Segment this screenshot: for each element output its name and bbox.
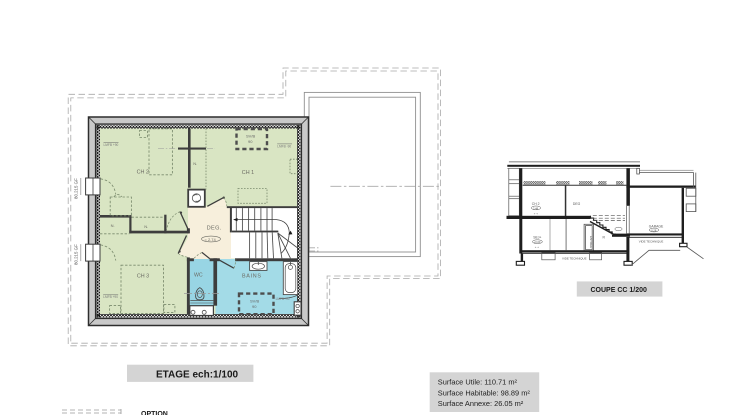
- svg-text:N.: N.: [144, 224, 148, 229]
- svg-text:CH 2: CH 2: [137, 169, 149, 175]
- svg-text:DEG.: DEG.: [207, 225, 222, 231]
- svg-text:Surface Utile: 110.71 m²: Surface Utile: 110.71 m²: [438, 378, 518, 387]
- svg-text:LMFB -90: LMFB -90: [277, 144, 291, 148]
- svg-text:= 2.74: = 2.74: [205, 237, 217, 242]
- svg-text:Surface Habitable: 98.89 m²: Surface Habitable: 98.89 m²: [438, 388, 531, 397]
- svg-text:GARAGE: GARAGE: [649, 225, 664, 229]
- svg-text:SV/B: SV/B: [250, 299, 259, 304]
- svg-text:+0.00: +0.00: [534, 240, 541, 244]
- svg-text:90: 90: [248, 139, 253, 144]
- svg-text:ENTREE: ENTREE: [589, 236, 593, 248]
- svg-text:80.215 GF: 80.215 GF: [74, 244, 79, 265]
- svg-text:CH 3: CH 3: [137, 273, 149, 279]
- svg-text:CH 1: CH 1: [242, 170, 254, 176]
- svg-text:Surface Annexe: 26.05 m²: Surface Annexe: 26.05 m²: [438, 399, 524, 408]
- svg-text:2.48: 2.48: [533, 206, 539, 210]
- svg-text:SEJ+: SEJ+: [533, 236, 541, 240]
- svg-text:N.: N.: [111, 223, 115, 228]
- svg-text:ETAGE ech:1/100: ETAGE ech:1/100: [156, 369, 239, 380]
- svg-text:80.215 GF: 80.215 GF: [74, 178, 79, 199]
- svg-text:COUPE CC 1/200: COUPE CC 1/200: [591, 287, 648, 294]
- svg-text:+ +: + +: [534, 211, 538, 215]
- svg-text:OPTION: OPTION: [141, 411, 168, 415]
- svg-text:LMFB+90: LMFB+90: [276, 297, 290, 301]
- svg-text:CH 2: CH 2: [532, 202, 540, 206]
- svg-text:+ +: + +: [535, 245, 539, 249]
- svg-text:WC: WC: [194, 273, 203, 279]
- svg-text:-0.28: -0.28: [650, 228, 656, 232]
- svg-text:90: 90: [252, 304, 257, 309]
- svg-text:LMFB +90: LMFB +90: [104, 143, 119, 147]
- svg-text:VIDE TECHNIQUE: VIDE TECHNIQUE: [639, 240, 664, 244]
- svg-text:LMFB +90: LMFB +90: [103, 295, 118, 299]
- svg-text:VIDE TECHNIQUE: VIDE TECHNIQUE: [562, 257, 587, 261]
- svg-text:SV/B: SV/B: [246, 134, 255, 139]
- svg-text:BAINS: BAINS: [242, 273, 262, 279]
- svg-text:N.: N.: [193, 161, 197, 166]
- svg-text:DEG: DEG: [573, 202, 581, 206]
